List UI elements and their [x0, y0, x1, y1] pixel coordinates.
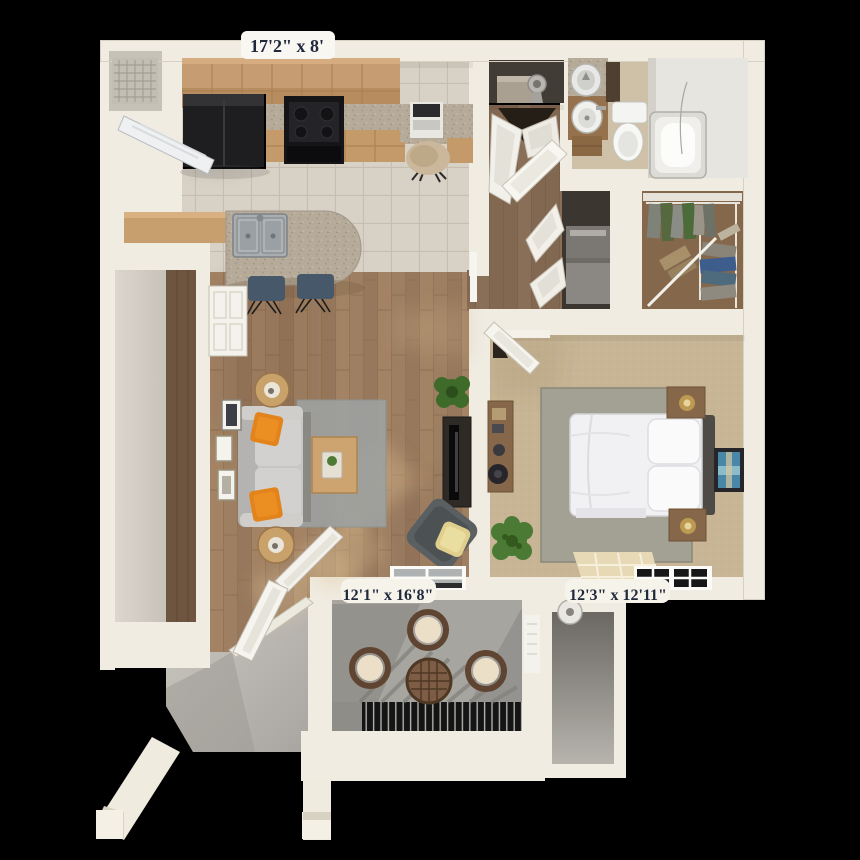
svg-text:17'2" x 8': 17'2" x 8' — [250, 36, 324, 56]
svg-text:12'3" x 12'11": 12'3" x 12'11" — [569, 587, 667, 604]
svg-text:12'1" x 16'8": 12'1" x 16'8" — [343, 587, 434, 604]
